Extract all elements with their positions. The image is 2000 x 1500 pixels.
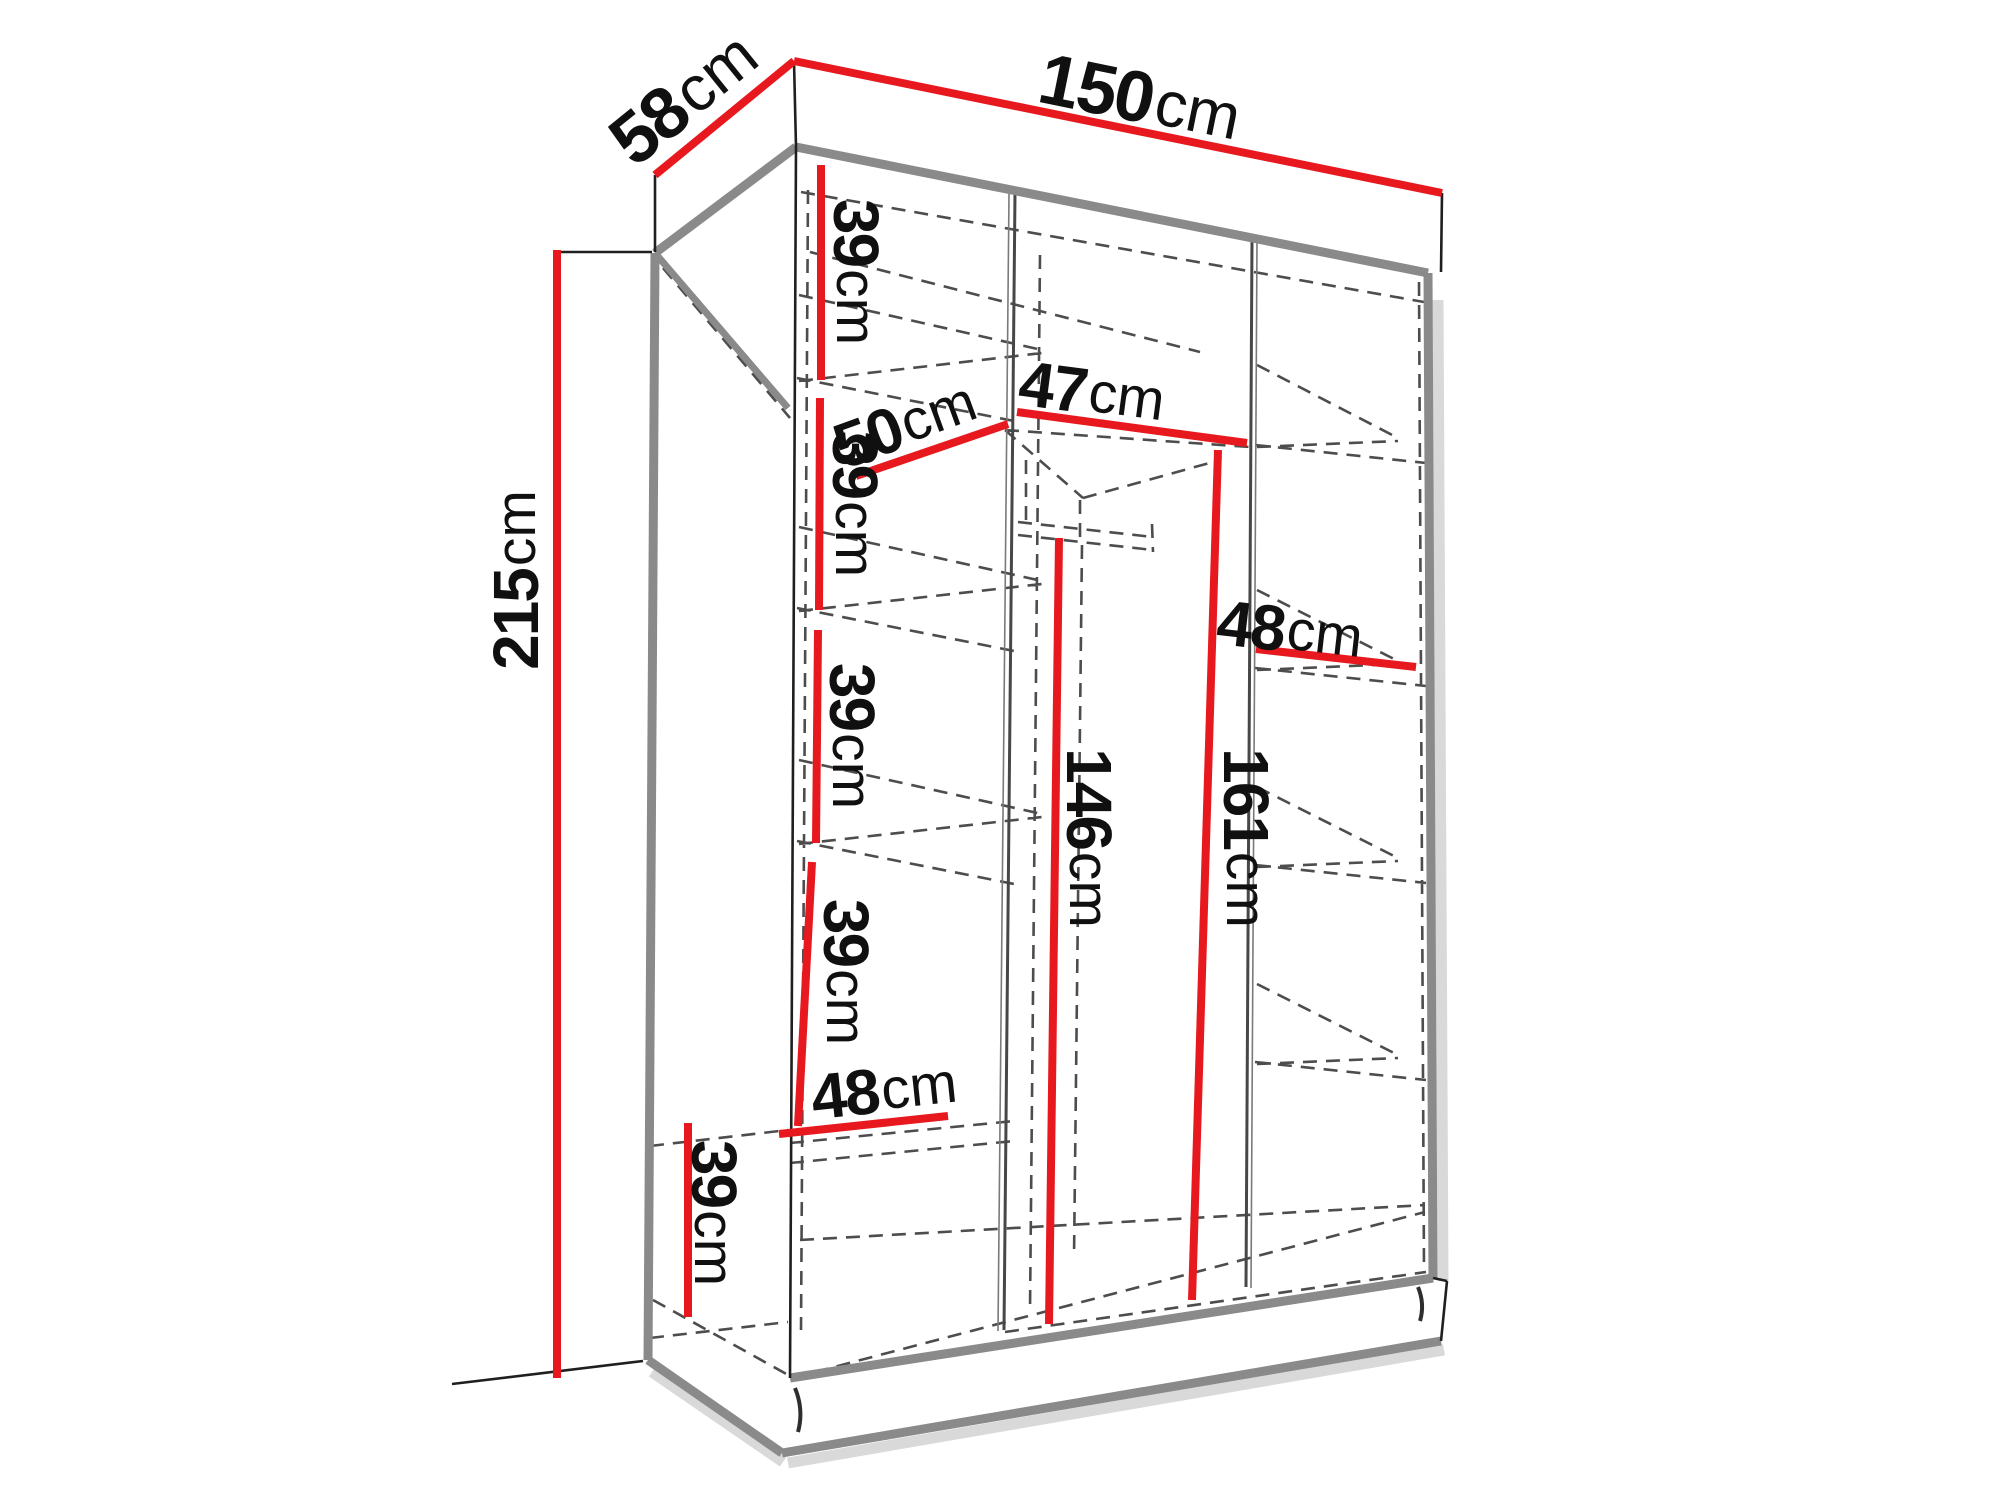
dim-label-middle-height: 161cm [1210,748,1282,928]
top-panel-right-cap [1441,193,1442,272]
dim-label-left-shelf-gap-3: 39cm [816,663,888,809]
dim-label-bottom-shelf-gap: 39cm [678,1140,750,1286]
height-bottom-extension-line [452,1361,643,1384]
shadow-right [1438,300,1443,1281]
dim-label-left-shelf-gap-1: 39cm [820,199,892,345]
dim-label-total-height: 215cm [480,490,552,670]
wardrobe-dimension-diagram: 150cm 58cm 215cm 39cm 39cm 39cm 39cm 48c… [0,0,2000,1500]
diagram-canvas: 150cm 58cm 215cm 39cm 39cm 39cm 39cm 48c… [0,0,2000,1500]
dim-label-left-shelf-gap-4: 39cm [810,899,882,1045]
dim-label-rail-height: 146cm [1053,748,1125,928]
dim-line-left-shelf-gap-2 [819,398,820,610]
right-outer-edge [1428,273,1433,1278]
